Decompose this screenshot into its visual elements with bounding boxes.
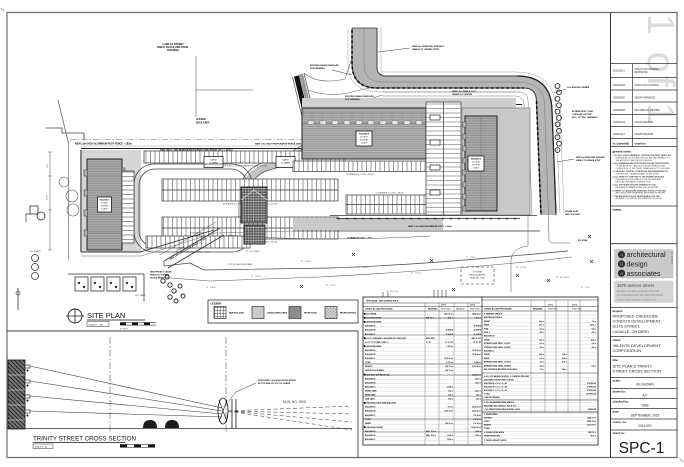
- svg-text:BUILDING: BUILDING: [167, 49, 179, 52]
- svg-text:general notes:: general notes:: [613, 150, 632, 154]
- svg-text:MIN. 30 %: MIN. 30 %: [588, 432, 596, 434]
- svg-text:BUILDING A: BUILDING A: [365, 406, 376, 409]
- svg-text:EXISTING SWALE REMOVED: EXISTING SWALE REMOVED: [310, 64, 339, 67]
- svg-text:d) LOT COVERAGE + BUILDING HG: d) LOT COVERAGE + BUILDING HGT PER CENT: [365, 337, 407, 340]
- svg-text:2019/08/09: 2019/08/09: [613, 109, 626, 112]
- svg-text:1,178.80 m²: 1,178.80 m²: [472, 353, 482, 356]
- svg-text:NO. STREET: NO. STREET: [30, 251, 42, 253]
- svg-text:SWALE TO GRADE STRIP: SWALE TO GRADE STRIP: [412, 48, 439, 51]
- svg-text:BUILDING C: BUILDING C: [484, 351, 495, 353]
- svg-text:13.8 m: 13.8 m: [562, 354, 568, 356]
- svg-text:2,313.89 m²: 2,313.89 m²: [472, 365, 482, 368]
- svg-text:SCALE 1 : 50: SCALE 1 : 50: [35, 446, 48, 449]
- svg-text:MUN. NO. 2008: MUN. NO. 2008: [283, 400, 306, 404]
- svg-text:SIDE 2: SIDE 2: [484, 332, 490, 334]
- svg-text:SITE BEFORE COMMENCEMENT OF AN: SITE BEFORE COMMENCEMENT OF ANY WORK.: [616, 172, 660, 175]
- svg-text:email mailbox@ada-architects.: email mailbox@ada-architects.ca: [617, 297, 657, 301]
- svg-text:BUILDING C: BUILDING C: [100, 200, 111, 202]
- svg-text:BUILDING B: BUILDING B: [484, 336, 495, 338]
- svg-text:4671.81 m²: 4671.81 m²: [444, 313, 453, 316]
- svg-text:178.40: 178.40: [210, 287, 216, 289]
- svg-text:VISITOR PARKING: VISITOR PARKING: [484, 396, 500, 399]
- svg-text:31' 57' 25': 31' 57' 25': [473, 342, 481, 344]
- svg-text:stamp:: stamp:: [613, 208, 622, 212]
- svg-text:e) BUILDING AREA: e) BUILDING AREA: [365, 345, 382, 348]
- svg-text:EXTEND EXIST. CONC.: EXTEND EXIST. CONC.: [572, 111, 594, 113]
- svg-text:2021/03/11: 2021/03/11: [613, 70, 625, 73]
- svg-text:PROPOSED: PROPOSED: [548, 309, 558, 311]
- svg-text:12.67 m: 12.67 m: [475, 382, 482, 384]
- svg-text:5. PAVED AREA: 5. PAVED AREA: [484, 413, 498, 416]
- svg-text:1,135.09 m²: 1,135.09 m²: [472, 349, 482, 352]
- svg-text:2020/10/02: 2020/10/02: [613, 84, 626, 87]
- svg-text:2019-052: 2019-052: [638, 424, 652, 428]
- svg-text:COMPLETION OF THE WORK. DRAWIN: COMPLETION OF THE WORK. DRAWINGS NOT TO …: [616, 167, 671, 170]
- svg-text:associates: associates: [627, 269, 661, 278]
- svg-text:CONC.: CONC.: [484, 421, 490, 423]
- svg-text:CLIENT REVIEW: CLIENT REVIEW: [635, 121, 654, 124]
- svg-text:1,236.70 m²: 1,236.70 m²: [444, 410, 454, 413]
- svg-text:NEW 1.2m HIGH ALUMINUM POST +: NEW 1.2m HIGH ALUMINUM POST + 183m: [408, 225, 452, 228]
- svg-text:A: A: [619, 252, 623, 257]
- svg-text:4.5 m: 4.5 m: [540, 346, 545, 349]
- svg-text:CONDO: CONDO: [101, 209, 108, 211]
- svg-text:EX. DITCH: EX. DITCH: [560, 277, 570, 279]
- svg-text:design: design: [627, 260, 648, 269]
- svg-text:VARIANCE: VARIANCE: [456, 308, 465, 311]
- svg-text:NEW BUILDING: NEW BUILDING: [229, 313, 244, 315]
- svg-text:NEW 9m MUNICIPAL ASPHALT: NEW 9m MUNICIPAL ASPHALT: [576, 156, 606, 159]
- svg-text:8.4 m: 8.4 m: [592, 364, 597, 367]
- svg-text:26.6 m: 26.6 m: [562, 362, 568, 364]
- svg-text:SITE PLAN CONTROL: SITE PLAN CONTROL: [635, 84, 660, 87]
- svg-text:NEW PRIVACY CEDAR: NEW PRIVACY CEDAR: [150, 271, 172, 274]
- svg-text:TOTAL: TOTAL: [365, 361, 372, 364]
- svg-text:7.62 m: 7.62 m: [448, 390, 454, 392]
- svg-text:BUILDING C: BUILDING C: [365, 334, 376, 336]
- svg-text:PROPOSED: PROPOSED: [470, 309, 480, 311]
- svg-text:REQUIRED: REQUIRED: [533, 309, 543, 311]
- svg-text:FRONT: FRONT: [484, 339, 491, 341]
- svg-text:INV. 177.2: INV. 177.2: [390, 291, 398, 293]
- svg-text:MIN. 30 m: MIN. 30 m: [426, 318, 434, 320]
- svg-text:comm. no.:: comm. no.:: [613, 420, 628, 424]
- svg-text:PAVERS: PAVERS: [484, 424, 492, 427]
- svg-text:ASPHALT: ASPHALT: [484, 417, 493, 420]
- svg-text:BUILDING C = 31 x 1.5 = 47: BUILDING C = 31 x 1.5 = 47: [484, 389, 507, 392]
- svg-text:SPC-1: SPC-1: [619, 440, 665, 457]
- svg-text:1,544.07 m²: 1,544.07 m²: [587, 417, 597, 420]
- svg-text:BUILDING B: BUILDING B: [365, 382, 376, 384]
- svg-text:ACCURACY OF SURVEY INFORMATION: ACCURACY OF SURVEY INFORMATION PROVIDED.: [616, 197, 663, 200]
- svg-text:3.0 m: 3.0 m: [540, 369, 545, 371]
- svg-text:LOT 1: LOT 1: [441, 305, 446, 307]
- svg-text:REQUIRED (B.F. SPACES - EACH: REQUIRED (B.F. SPACES - EACH 100: [484, 405, 516, 408]
- svg-text:BUILDING A: BUILDING A: [471, 158, 482, 161]
- svg-text:170.14 m²: 170.14 m²: [473, 422, 481, 425]
- svg-text:LOT 2: LOT 2: [211, 160, 218, 162]
- svg-text:PROPOSED 1.8m HIGH WOOD FENCE: PROPOSED 1.8m HIGH WOOD FENCE: [258, 380, 296, 382]
- svg-text:CORPORATION: CORPORATION: [613, 348, 642, 353]
- svg-text:TOTAL: TOTAL: [365, 418, 372, 421]
- svg-text:36.91: 36.91: [47, 194, 49, 200]
- svg-text:LOT 2: LOT 2: [470, 305, 475, 307]
- svg-text:170.32 m²: 170.32 m²: [473, 418, 481, 421]
- svg-text:BUILDING C: BUILDING C: [365, 358, 376, 360]
- svg-text:4 STOREY: 4 STOREY: [472, 165, 481, 167]
- svg-text:checked by:: checked by:: [613, 400, 629, 404]
- svg-text:CONDO: CONDO: [361, 143, 368, 145]
- svg-text:SMB: SMB: [642, 404, 649, 408]
- svg-text:g) BUILDING (SIDE YARD AND: g) BUILDING (SIDE YARD AND (W.S): [365, 402, 396, 405]
- svg-text:PAVED ROAD: PAVED ROAD: [304, 312, 318, 315]
- svg-text:9.0 m: 9.0 m: [540, 343, 545, 345]
- svg-text:REAR: REAR: [484, 357, 490, 360]
- svg-text:MAX. 15.0 m: MAX. 15.0 m: [426, 430, 436, 433]
- svg-text:c) BUILDING AREA: c) BUILDING AREA: [365, 321, 382, 324]
- svg-text:1670 mercer street: 1670 mercer street: [617, 283, 655, 288]
- svg-text:NEW 1.8m HIGH ALUMINUM POST FE: NEW 1.8m HIGH ALUMINUM POST FENCE + 183m: [75, 143, 132, 146]
- svg-text:37' 25': 37' 25': [426, 342, 432, 344]
- svg-text:b) LOT FRONTAGE: b) LOT FRONTAGE: [365, 317, 382, 320]
- svg-text:6,250.23 m²: 6,250.23 m²: [472, 406, 482, 409]
- svg-text:drawn by:: drawn by:: [613, 390, 626, 394]
- svg-text:2020/05/20: 2020/05/20: [613, 97, 626, 100]
- svg-text:SWALE TO GRADE STRIP: SWALE TO GRADE STRIP: [576, 159, 601, 162]
- svg-text:LEGEND: LEGEND: [211, 302, 222, 306]
- svg-text:31 UNITS: 31 UNITS: [446, 334, 454, 336]
- svg-text:SPC PRELIM. REVIEW: SPC PRELIM. REVIEW: [635, 109, 661, 112]
- svg-text:177.6: 177.6: [585, 287, 590, 289]
- svg-text:SITE DATA - SEE ZONING RE-E: SITE DATA - SEE ZONING RE-E: [366, 300, 399, 303]
- svg-text:4.6 m: 4.6 m: [592, 331, 597, 334]
- svg-text:MIN. DISTANCE BETWEEN BUILDING: MIN. DISTANCE BETWEEN BUILDINGS: [484, 368, 518, 371]
- svg-text:177.75: 177.75: [330, 285, 336, 287]
- svg-text:FOR GRADING: FOR GRADING: [345, 98, 360, 101]
- svg-text:project:: project:: [613, 309, 623, 313]
- svg-text:BUILDING C: BUILDING C: [365, 439, 376, 441]
- svg-text:NEW 9m MUNICIPAL ASPHALT: NEW 9m MUNICIPAL ASPHALT: [412, 45, 445, 48]
- svg-text:SEE CIVIL DWG: SEE CIVIL DWG: [565, 214, 581, 216]
- svg-text:TOTAL: TOTAL: [484, 427, 491, 430]
- svg-text:windsor ontario canada n9b 2p: windsor ontario canada n9b 2p7: [617, 289, 660, 293]
- svg-text:BUILDING A/TOTALS: BUILDING A/TOTALS: [484, 316, 503, 319]
- svg-text:29.6 m: 29.6 m: [562, 358, 568, 360]
- svg-text:29.6 m: 29.6 m: [591, 339, 597, 341]
- svg-text:178.08: 178.08: [362, 267, 368, 269]
- svg-text:4 SPACES: 4 SPACES: [588, 408, 597, 411]
- svg-text:a) LOT AREA: a) LOT AREA: [365, 313, 377, 316]
- svg-text:59.4 m: 59.4 m: [476, 317, 482, 320]
- svg-text:4 STOREY: 4 STOREY: [360, 140, 369, 142]
- svg-text:LOT 3: LOT 3: [283, 160, 290, 162]
- svg-text:BUILDING B: BUILDING B: [359, 134, 370, 136]
- svg-text:32 UNITS: 32 UNITS: [474, 330, 482, 332]
- svg-text:BUILDING C: BUILDING C: [365, 415, 376, 417]
- svg-text:SITE PLAN: SITE PLAN: [87, 311, 125, 320]
- svg-text:3,600.88 m²: 3,600.88 m²: [472, 373, 482, 376]
- svg-text:f) BUILDING SET BACKS (R): f) BUILDING SET BACKS (R): [365, 373, 390, 376]
- svg-text:PROPOSED: PROPOSED: [441, 309, 451, 311]
- svg-text:DENSITY: DENSITY: [365, 366, 374, 368]
- svg-text:7.5 m: 7.5 m: [592, 321, 597, 323]
- svg-text:FRONT YARD: FRONT YARD: [365, 389, 377, 392]
- svg-text:13.06 m: 13.06 m: [447, 439, 454, 441]
- svg-text:MINOR VARIANCE: MINOR VARIANCE: [635, 97, 656, 100]
- svg-text:2. PARKING SPACES: 2. PARKING SPACES: [484, 313, 503, 316]
- svg-text:ZONING BY-LAW PROVISIONS: ZONING BY-LAW PROVISIONS: [484, 308, 512, 311]
- svg-text:FENCE TO SCREEN: FENCE TO SCREEN: [150, 275, 170, 277]
- svg-text:1.85 m: 1.85 m: [562, 369, 568, 371]
- svg-text:LOT 1: LOT 1: [548, 305, 553, 307]
- svg-text:A.P: A.P: [642, 394, 647, 398]
- svg-text:1.50 m: 1.50 m: [476, 395, 482, 397]
- svg-text:AND LANDSCAPE TREATMENT INFORM: AND LANDSCAPE TREATMENT INFORMATION SHOW…: [616, 192, 666, 195]
- svg-text:SEPTEMBER, 2019: SEPTEMBER, 2019: [631, 414, 660, 418]
- svg-text:14.07 m: 14.07 m: [475, 377, 482, 380]
- svg-text:BUILDING B: BUILDING B: [365, 354, 376, 356]
- svg-text:STREET CROSS SECTION: STREET CROSS SECTION: [613, 369, 662, 374]
- svg-text:2019/04/17: 2019/04/17: [613, 133, 626, 136]
- svg-text:2,230.09 m²: 2,230.09 m²: [472, 410, 482, 413]
- svg-text:2019/10/04: 2019/10/04: [613, 121, 626, 124]
- svg-text:31' 57' 25': 31' 57' 25': [445, 342, 453, 344]
- svg-text:BUILDING C: BUILDING C: [365, 386, 376, 388]
- svg-text:LASALLE, ONTARIO: LASALLE, ONTARIO: [613, 329, 649, 334]
- svg-text:14.7 m: 14.7 m: [539, 324, 545, 327]
- svg-text:9.7 m: 9.7 m: [540, 328, 545, 330]
- svg-text:REQUIRED: REQUIRED: [428, 309, 438, 311]
- svg-text:ENGINEER'S DRAWINGS AND SPECIF: ENGINEER'S DRAWINGS AND SPECIFICATIONS.: [616, 186, 660, 189]
- svg-text:4.5 m: 4.5 m: [540, 364, 545, 367]
- svg-text:REGULATIONS HAVING JURISDICTIO: REGULATIONS HAVING JURISDICTION.: [616, 180, 652, 183]
- svg-text:30 UNITS: 30 UNITS: [472, 162, 480, 164]
- svg-text:REAR YARD: REAR YARD: [365, 394, 376, 397]
- svg-text:5442.03 m²: 5442.03 m²: [472, 313, 481, 316]
- svg-text:15.85 m: 15.85 m: [447, 386, 454, 388]
- svg-text:177.95: 177.95: [415, 273, 421, 275]
- svg-text:45.2 %: 45.2 %: [591, 435, 597, 438]
- svg-text:GRADE TO CENTER: GRADE TO CENTER: [452, 93, 473, 96]
- svg-text:4 STY 37' 25' (SEE. SPEC. P: 4 STY 37' 25' (SEE. SPEC. P: [365, 341, 389, 344]
- svg-text:BUILDING A = 30 x 1.5 = 45: BUILDING A = 30 x 1.5 = 45: [484, 382, 507, 385]
- svg-text:ZONING BY-LAW PROVISIONS: ZONING BY-LAW PROVISIONS: [365, 308, 393, 311]
- svg-text:MAX. 4 STY: MAX. 4 STY: [426, 337, 436, 340]
- svg-text:LOT 2: LOT 2: [572, 305, 577, 307]
- svg-text:DECK AREA: DECK AREA: [196, 122, 210, 125]
- svg-text:2 STOREY: 2 STOREY: [473, 272, 484, 274]
- svg-text:13m RADIUS CORNER: 13m RADIUS CORNER: [567, 86, 590, 89]
- svg-text:29.47 m: 29.47 m: [590, 324, 597, 327]
- svg-text:31 UNITS: 31 UNITS: [101, 203, 109, 205]
- svg-text:14.0 m: 14.0 m: [539, 338, 545, 341]
- svg-text:PROPOSED: PROPOSED: [572, 309, 582, 311]
- svg-text:no. (yy/mm/dd): no. (yy/mm/dd): [613, 144, 630, 146]
- svg-text:BUILDING B: BUILDING B: [365, 330, 376, 332]
- svg-text:INCL. 6FT DBL. SIDEWALK: INCL. 6FT DBL. SIDEWALK: [572, 116, 598, 119]
- svg-text:1,178.80 m²: 1,178.80 m²: [444, 357, 454, 360]
- svg-text:EXISTING SWALE REMOVED: EXISTING SWALE REMOVED: [345, 95, 374, 98]
- svg-text:W/ TOP RAIL AT TOP OF GRADE: W/ TOP RAIL AT TOP OF GRADE: [258, 382, 291, 385]
- svg-text:AS SHOWN: AS SHOWN: [636, 383, 654, 387]
- svg-text:FOR GRADING: FOR GRADING: [310, 67, 325, 70]
- svg-text:REVISIONS: REVISIONS: [635, 71, 648, 74]
- svg-text:client:: client:: [613, 338, 621, 342]
- svg-text:9.6 m: 9.6 m: [592, 343, 597, 345]
- svg-text:141 SPACES: 141 SPACES: [586, 393, 597, 396]
- svg-text:MAX. 15.0 m: MAX. 15.0 m: [426, 434, 436, 437]
- svg-text:13.06 m: 13.06 m: [475, 435, 482, 437]
- svg-text:4.5 m: 4.5 m: [540, 361, 545, 364]
- svg-text:INTERIOR SIDE YARD - NORTH: INTERIOR SIDE YARD - NORTH: [484, 346, 511, 349]
- svg-text:59.4 m: 59.4 m: [448, 317, 454, 320]
- svg-text:47 SPACES: 47 SPACES: [587, 386, 597, 389]
- svg-text:47 SPACES: 47 SPACES: [587, 382, 597, 385]
- svg-text:PAVED: PAVED: [365, 422, 372, 425]
- svg-text:178.35: 178.35: [255, 276, 261, 278]
- svg-text:772.28 m²: 772.28 m²: [473, 414, 481, 417]
- svg-text:CONDO: CONDO: [473, 168, 480, 170]
- svg-text:13.06 m: 13.06 m: [475, 431, 482, 433]
- svg-text:1.50 m: 1.50 m: [476, 399, 482, 401]
- svg-text:1.04 AREA: 1.04 AREA: [281, 162, 291, 165]
- svg-text:899.72 m²: 899.72 m²: [445, 365, 453, 368]
- svg-text:+ NO FIRST EXCESS REGULATION +: + NO FIRST EXCESS REGULATION +50/70: [484, 408, 520, 411]
- svg-text:177.88: 177.88: [520, 267, 526, 269]
- svg-text:sheet no.:: sheet no.:: [613, 431, 626, 435]
- svg-text:EX. GRADE: EX. GRADE: [250, 250, 261, 253]
- svg-text:1,135 m²: 1,135 m²: [446, 345, 453, 348]
- svg-text:TOP OF THE RIVER BANK: TOP OF THE RIVER BANK: [228, 263, 253, 266]
- svg-text:THE ARCHITECT BEFORE PROCEEDIN: THE ARCHITECT BEFORE PROCEEDING.: [616, 159, 654, 162]
- svg-text:MAX. 4 STY: MAX. 4 STY: [472, 337, 482, 340]
- svg-text:STORM INLET: STORM INLET: [565, 211, 579, 213]
- svg-text:A: A: [619, 271, 623, 276]
- svg-text:14.07 m: 14.07 m: [475, 389, 482, 392]
- svg-text:LEGEND: LEGEND: [196, 119, 206, 121]
- svg-text:INTERIOR SIDE YARD - SOUTH: INTERIOR SIDE YARD - SOUTH: [484, 361, 511, 364]
- svg-text:3,448 m²: 3,448 m²: [474, 361, 481, 364]
- svg-text:title:: title:: [613, 358, 619, 362]
- svg-text:4. NO. OF BARRIER FREE SPACES: 4. NO. OF BARRIER FREE SPACES: [484, 401, 515, 404]
- svg-text:4.5 m: 4.5 m: [540, 331, 545, 334]
- svg-text:PATIOS 10.5m: PATIOS 10.5m: [150, 277, 164, 280]
- svg-text:SIDE YARD: SIDE YARD: [365, 398, 375, 401]
- svg-text:9.0 m: 9.0 m: [540, 358, 545, 360]
- svg-text:6,250.23 m²: 6,250.23 m²: [587, 420, 597, 423]
- svg-text:CITY PARK: CITY PARK: [135, 294, 146, 297]
- svg-text:INTERIOR SIDE YARD - NORTH: INTERIOR SIDE YARD - NORTH: [484, 364, 511, 367]
- svg-text:issued for:: issued for:: [635, 144, 647, 146]
- svg-text:899.72 m²: 899.72 m²: [445, 369, 453, 372]
- svg-text:BUILDING A: BUILDING A: [365, 430, 376, 433]
- svg-text:GRASS/PLANTING: GRASS/PLANTING: [484, 435, 501, 438]
- svg-text:178.21: 178.21: [305, 261, 311, 263]
- svg-text:BUILDING A: BUILDING A: [365, 349, 376, 352]
- svg-text:CURB AND GUTTER: CURB AND GUTTER: [572, 113, 592, 116]
- svg-text:BRICK BUILDING: BRICK BUILDING: [469, 275, 486, 277]
- svg-text:architectural: architectural: [627, 250, 667, 259]
- svg-text:scale:: scale:: [613, 379, 621, 383]
- svg-text:18 SPACES @ 2.75m = 49.5m: 18 SPACES @ 2.75m = 49.5m: [346, 173, 374, 176]
- svg-text:BUILDING B: BUILDING B: [365, 435, 376, 437]
- svg-text:4.6 m: 4.6 m: [592, 346, 597, 349]
- svg-text:EX. ROAD: EX. ROAD: [578, 239, 588, 242]
- svg-text:13.06 m: 13.06 m: [447, 435, 454, 437]
- svg-text:236.52 m²: 236.52 m²: [445, 422, 453, 425]
- svg-text:(INCLUDES VISITOR PER 7 UNITS): (INCLUDES VISITOR PER 7 UNITS): [484, 380, 514, 382]
- svg-text:32 UNITS: 32 UNITS: [360, 137, 368, 139]
- svg-text:CLIENT REVIEW: CLIENT REVIEW: [635, 133, 654, 136]
- svg-text:BUILDING B = 32 x 1.5 = 48: BUILDING B = 32 x 1.5 = 48: [484, 386, 507, 389]
- svg-text:BUILDING A: BUILDING A: [365, 377, 376, 380]
- svg-text:178.10: 178.10: [470, 257, 476, 259]
- svg-text:NEW 1.2m SWALE IS TO: NEW 1.2m SWALE IS TO: [452, 90, 476, 93]
- svg-text:7. GROSS DENSITY (UPH): 7. GROSS DENSITY (UPH): [484, 440, 507, 442]
- svg-text:h) BUILDING HEIGHT: h) BUILDING HEIGHT: [365, 427, 384, 429]
- svg-text:MUN. NO. 2000: MUN. NO. 2000: [470, 278, 485, 280]
- svg-text:32 UNITS: 32 UNITS: [446, 330, 454, 332]
- svg-text:4 STOREY: 4 STOREY: [100, 206, 109, 208]
- svg-text:14.0 m: 14.0 m: [539, 353, 545, 356]
- svg-text:7.62 m: 7.62 m: [448, 395, 454, 397]
- svg-text:TRINITY STREET CROSS SECTION: TRINITY STREET CROSS SECTION: [33, 436, 136, 443]
- svg-text:31 UNITS: 31 UNITS: [474, 334, 482, 336]
- svg-text:15,221.08 m²: 15,221.08 m²: [471, 426, 481, 429]
- svg-text:SCALE 1 : 150: SCALE 1 : 150: [89, 324, 104, 327]
- svg-text:inc. architect: inc. architect: [671, 252, 674, 265]
- svg-text:2,230.09 m²: 2,230.09 m²: [587, 424, 597, 427]
- svg-text:PAVER ASPHALT: PAVER ASPHALT: [340, 312, 357, 315]
- svg-text:REAR: REAR: [484, 324, 490, 327]
- svg-text:1.50 m: 1.50 m: [448, 399, 454, 401]
- svg-text:FRONT: FRONT: [484, 354, 491, 356]
- svg-text:GROSS FLOOR AREA: GROSS FLOOR AREA: [365, 369, 385, 372]
- svg-text:14 SPACES @ 2.75m = 38.5m: 14 SPACES @ 2.75m = 38.5m: [376, 192, 404, 195]
- svg-text:47 SPACES: 47 SPACES: [587, 389, 597, 392]
- svg-text:BUILDING B: BUILDING B: [365, 411, 376, 413]
- svg-text:TOTAL: TOTAL: [484, 393, 491, 396]
- svg-text:772 m²: 772 m²: [448, 406, 454, 409]
- svg-text:INTERIOR SIDE YARD - SOUTH: INTERIOR SIDE YARD - SOUTH: [484, 342, 511, 345]
- svg-text:8.6 m: 8.6 m: [592, 328, 597, 330]
- svg-text:FRONT: FRONT: [484, 321, 491, 323]
- svg-text:6. LANDSCAPED AREA: 6. LANDSCAPED AREA: [484, 431, 505, 434]
- svg-text:3. NO. OF PARKING SPACES - 1.: 3. NO. OF PARKING SPACES - 1.5 SPACES PE…: [484, 375, 530, 378]
- svg-text:ph 519.254.2470 fax 519.254.2: ph 519.254.2470 fax 519.254.2510: [617, 293, 664, 297]
- svg-text:2,313 m²: 2,313 m²: [446, 361, 453, 364]
- svg-text:30 UNITS: 30 UNITS: [474, 326, 482, 328]
- svg-text:14.0 m: 14.0 m: [539, 320, 545, 323]
- svg-text:LANDSCAPED AREA: LANDSCAPED AREA: [267, 312, 288, 315]
- svg-text:0 5 10 20: 0 5 10 20: [120, 329, 128, 331]
- svg-text:BUILDING A: BUILDING A: [365, 325, 376, 328]
- svg-text:date:: date:: [613, 410, 620, 414]
